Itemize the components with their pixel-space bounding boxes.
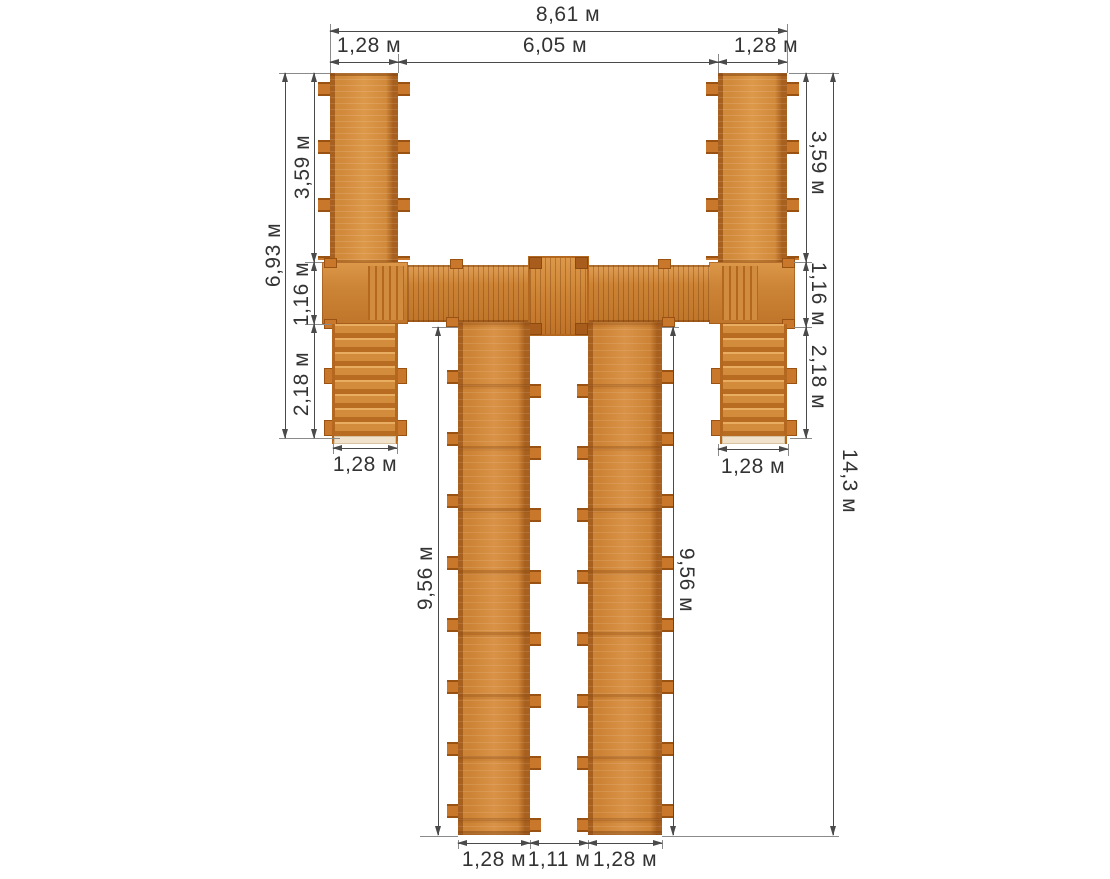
dim-label-right-walkway-length: 9,56 м xyxy=(674,548,698,612)
dim-line-left-platform-depth xyxy=(314,262,315,324)
dim-label-right-ramp-length: 3,59 м xyxy=(806,131,830,195)
dim-line-top-total xyxy=(330,31,787,32)
right-ramp xyxy=(718,73,787,262)
left-platform-deck-stripes xyxy=(368,266,404,320)
left-walkway xyxy=(458,322,530,835)
dim-label-top-total: 8,61 м xyxy=(536,3,600,27)
left-platform xyxy=(322,262,408,324)
extension-line xyxy=(790,438,812,439)
left-stairs-bottom-step xyxy=(334,436,396,444)
crossbar-lug-right-top xyxy=(658,259,671,269)
dim-line-bottom-gap xyxy=(530,843,588,844)
center-platform-corner-tr xyxy=(575,257,588,269)
dim-line-top-right-ramp xyxy=(718,62,787,63)
left-ramp xyxy=(330,73,398,262)
dim-label-right-platform-depth: 1,16 м xyxy=(806,262,830,326)
extension-line xyxy=(420,836,458,837)
right-ramp-tabs-right xyxy=(787,75,799,260)
dim-line-left-stair-width xyxy=(333,448,397,449)
right-stairs-tab-2 xyxy=(786,368,797,384)
dim-label-left-stair-width: 1,28 м xyxy=(333,453,397,477)
right-stairs xyxy=(720,324,787,444)
center-platform-corner-br xyxy=(575,323,588,335)
dim-label-left-ramp-length: 3,59 м xyxy=(291,135,315,199)
center-platform xyxy=(528,256,589,336)
dim-label-right-stair-width: 1,28 м xyxy=(721,455,785,479)
right-walkway-tabs-right xyxy=(661,322,673,835)
extension-line xyxy=(279,438,340,439)
right-platform-deck-stripes xyxy=(722,266,758,320)
dim-label-bottom-gap: 1,11 м xyxy=(528,848,591,872)
dim-line-left-walkway-length xyxy=(438,327,439,835)
dim-line-right-stair-width xyxy=(718,449,788,450)
dim-line-bottom-right-width xyxy=(588,843,662,844)
diagram-canvas: 8,61 м 1,28 м 6,05 м 1,28 м 6,93 м 3,59 … xyxy=(0,0,1110,879)
dim-label-overall-height: 14,3 м xyxy=(837,449,861,513)
left-ramp-tabs-left xyxy=(318,75,330,260)
dim-label-right-stair-length: 2,18 м xyxy=(806,345,830,409)
extension-line xyxy=(662,836,839,837)
dim-line-bottom-left-width xyxy=(458,843,530,844)
right-platform xyxy=(709,262,795,324)
dim-line-left-stair-length xyxy=(314,324,315,438)
right-stairs-bottom-step xyxy=(722,436,785,444)
dim-line-top-left-ramp xyxy=(330,62,398,63)
right-walkway xyxy=(588,322,662,835)
dim-label-bottom-left-width: 1,28 м xyxy=(462,848,526,872)
dim-label-bottom-right-width: 1,28 м xyxy=(593,848,657,872)
dim-label-top-inner-span: 6,05 м xyxy=(523,34,587,58)
right-stairs-tab-4 xyxy=(786,420,797,436)
center-platform-corner-tl xyxy=(529,257,542,269)
crossbar-lug-left-top xyxy=(450,259,463,269)
left-platform-lug-top xyxy=(324,258,337,268)
dim-label-left-platform-depth: 1,16 м xyxy=(290,262,314,326)
left-ramp-tabs-right xyxy=(398,75,410,260)
dim-label-left-overall: 6,93 м xyxy=(262,223,286,287)
center-platform-corner-bl xyxy=(529,323,542,335)
dim-label-left-stair-length: 2,18 м xyxy=(290,352,314,416)
dim-label-left-walkway-length: 9,56 м xyxy=(414,546,438,610)
dim-line-overall-height xyxy=(833,73,834,835)
dim-line-top-inner-span xyxy=(398,62,718,63)
left-stairs xyxy=(332,324,398,444)
dim-label-top-left-ramp-width: 1,28 м xyxy=(337,34,401,58)
dim-label-top-right-ramp-width: 1,28 м xyxy=(734,34,798,58)
right-ramp-tabs-left xyxy=(706,75,718,260)
right-platform-lug-top xyxy=(782,258,795,268)
left-walkway-tabs-right xyxy=(529,336,541,835)
